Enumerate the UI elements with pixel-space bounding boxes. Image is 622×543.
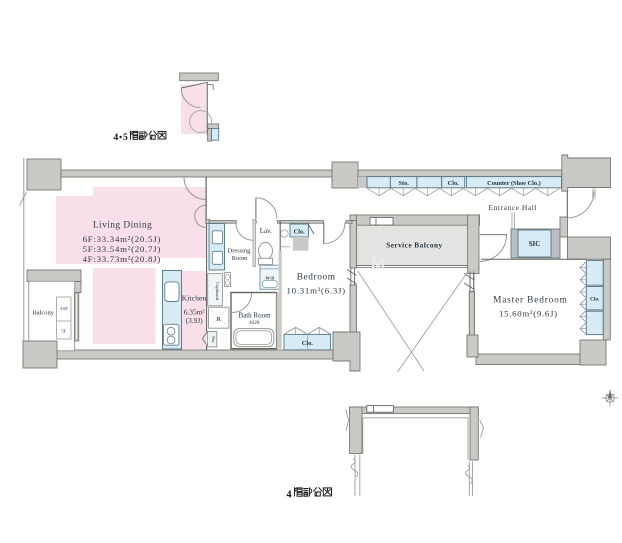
svg-text:4: 4	[287, 490, 292, 501]
svg-text:6.35m²: 6.35m²	[184, 307, 206, 316]
svg-text:Balcony: Balcony	[33, 309, 55, 316]
svg-text:Bedroom: Bedroom	[297, 273, 336, 283]
svg-text:Pan.: Pan.	[211, 336, 216, 343]
svg-text:Sto.: Sto.	[398, 180, 409, 187]
svg-text:Counter (Shoe Clo.): Counter (Shoe Clo.)	[487, 180, 541, 187]
svg-text:Clo.: Clo.	[294, 228, 305, 235]
svg-text:5: 5	[123, 133, 128, 143]
svg-text:1620: 1620	[249, 320, 260, 326]
svg-text:10.31m²(6.3J): 10.31m²(6.3J)	[287, 286, 346, 296]
svg-text:4F:33.73m²(20.8J): 4F:33.73m²(20.8J)	[83, 254, 161, 264]
svg-text:Service Balcony: Service Balcony	[386, 241, 442, 250]
svg-text:Entrance Hall: Entrance Hall	[488, 203, 537, 212]
svg-text:M: M	[371, 254, 385, 273]
svg-text:4·6F: 4·6F	[60, 306, 69, 311]
svg-text:15.60m²(9.6J): 15.60m²(9.6J)	[499, 309, 558, 319]
svg-text:Clo.: Clo.	[302, 340, 313, 347]
svg-text:Master Bedroom: Master Bedroom	[493, 295, 568, 305]
svg-text:Clo.: Clo.	[590, 297, 600, 303]
svg-text:5F:33.54m²(20.7J): 5F:33.54m²(20.7J)	[83, 244, 161, 254]
svg-text:Cupboard: Cupboard	[215, 282, 220, 301]
svg-text:5F: 5F	[61, 329, 66, 334]
svg-text:(3.9J): (3.9J)	[186, 316, 204, 325]
svg-text:4: 4	[114, 133, 119, 143]
svg-text:R: R	[216, 316, 221, 323]
svg-text:Kitchen: Kitchen	[182, 293, 207, 302]
svg-text:Dressing: Dressing	[228, 247, 252, 254]
svg-text:Living Dining: Living Dining	[93, 220, 152, 230]
svg-text:W·D: W·D	[266, 275, 275, 280]
svg-text:Room: Room	[232, 255, 248, 262]
svg-text:Lav.: Lav.	[260, 227, 272, 235]
svg-text:6F:33.34m²(20.5J): 6F:33.34m²(20.5J)	[83, 234, 161, 244]
svg-text:Bath Room: Bath Room	[238, 311, 271, 319]
svg-text:SIC: SIC	[529, 240, 541, 248]
svg-text:Clo.: Clo.	[448, 180, 459, 187]
